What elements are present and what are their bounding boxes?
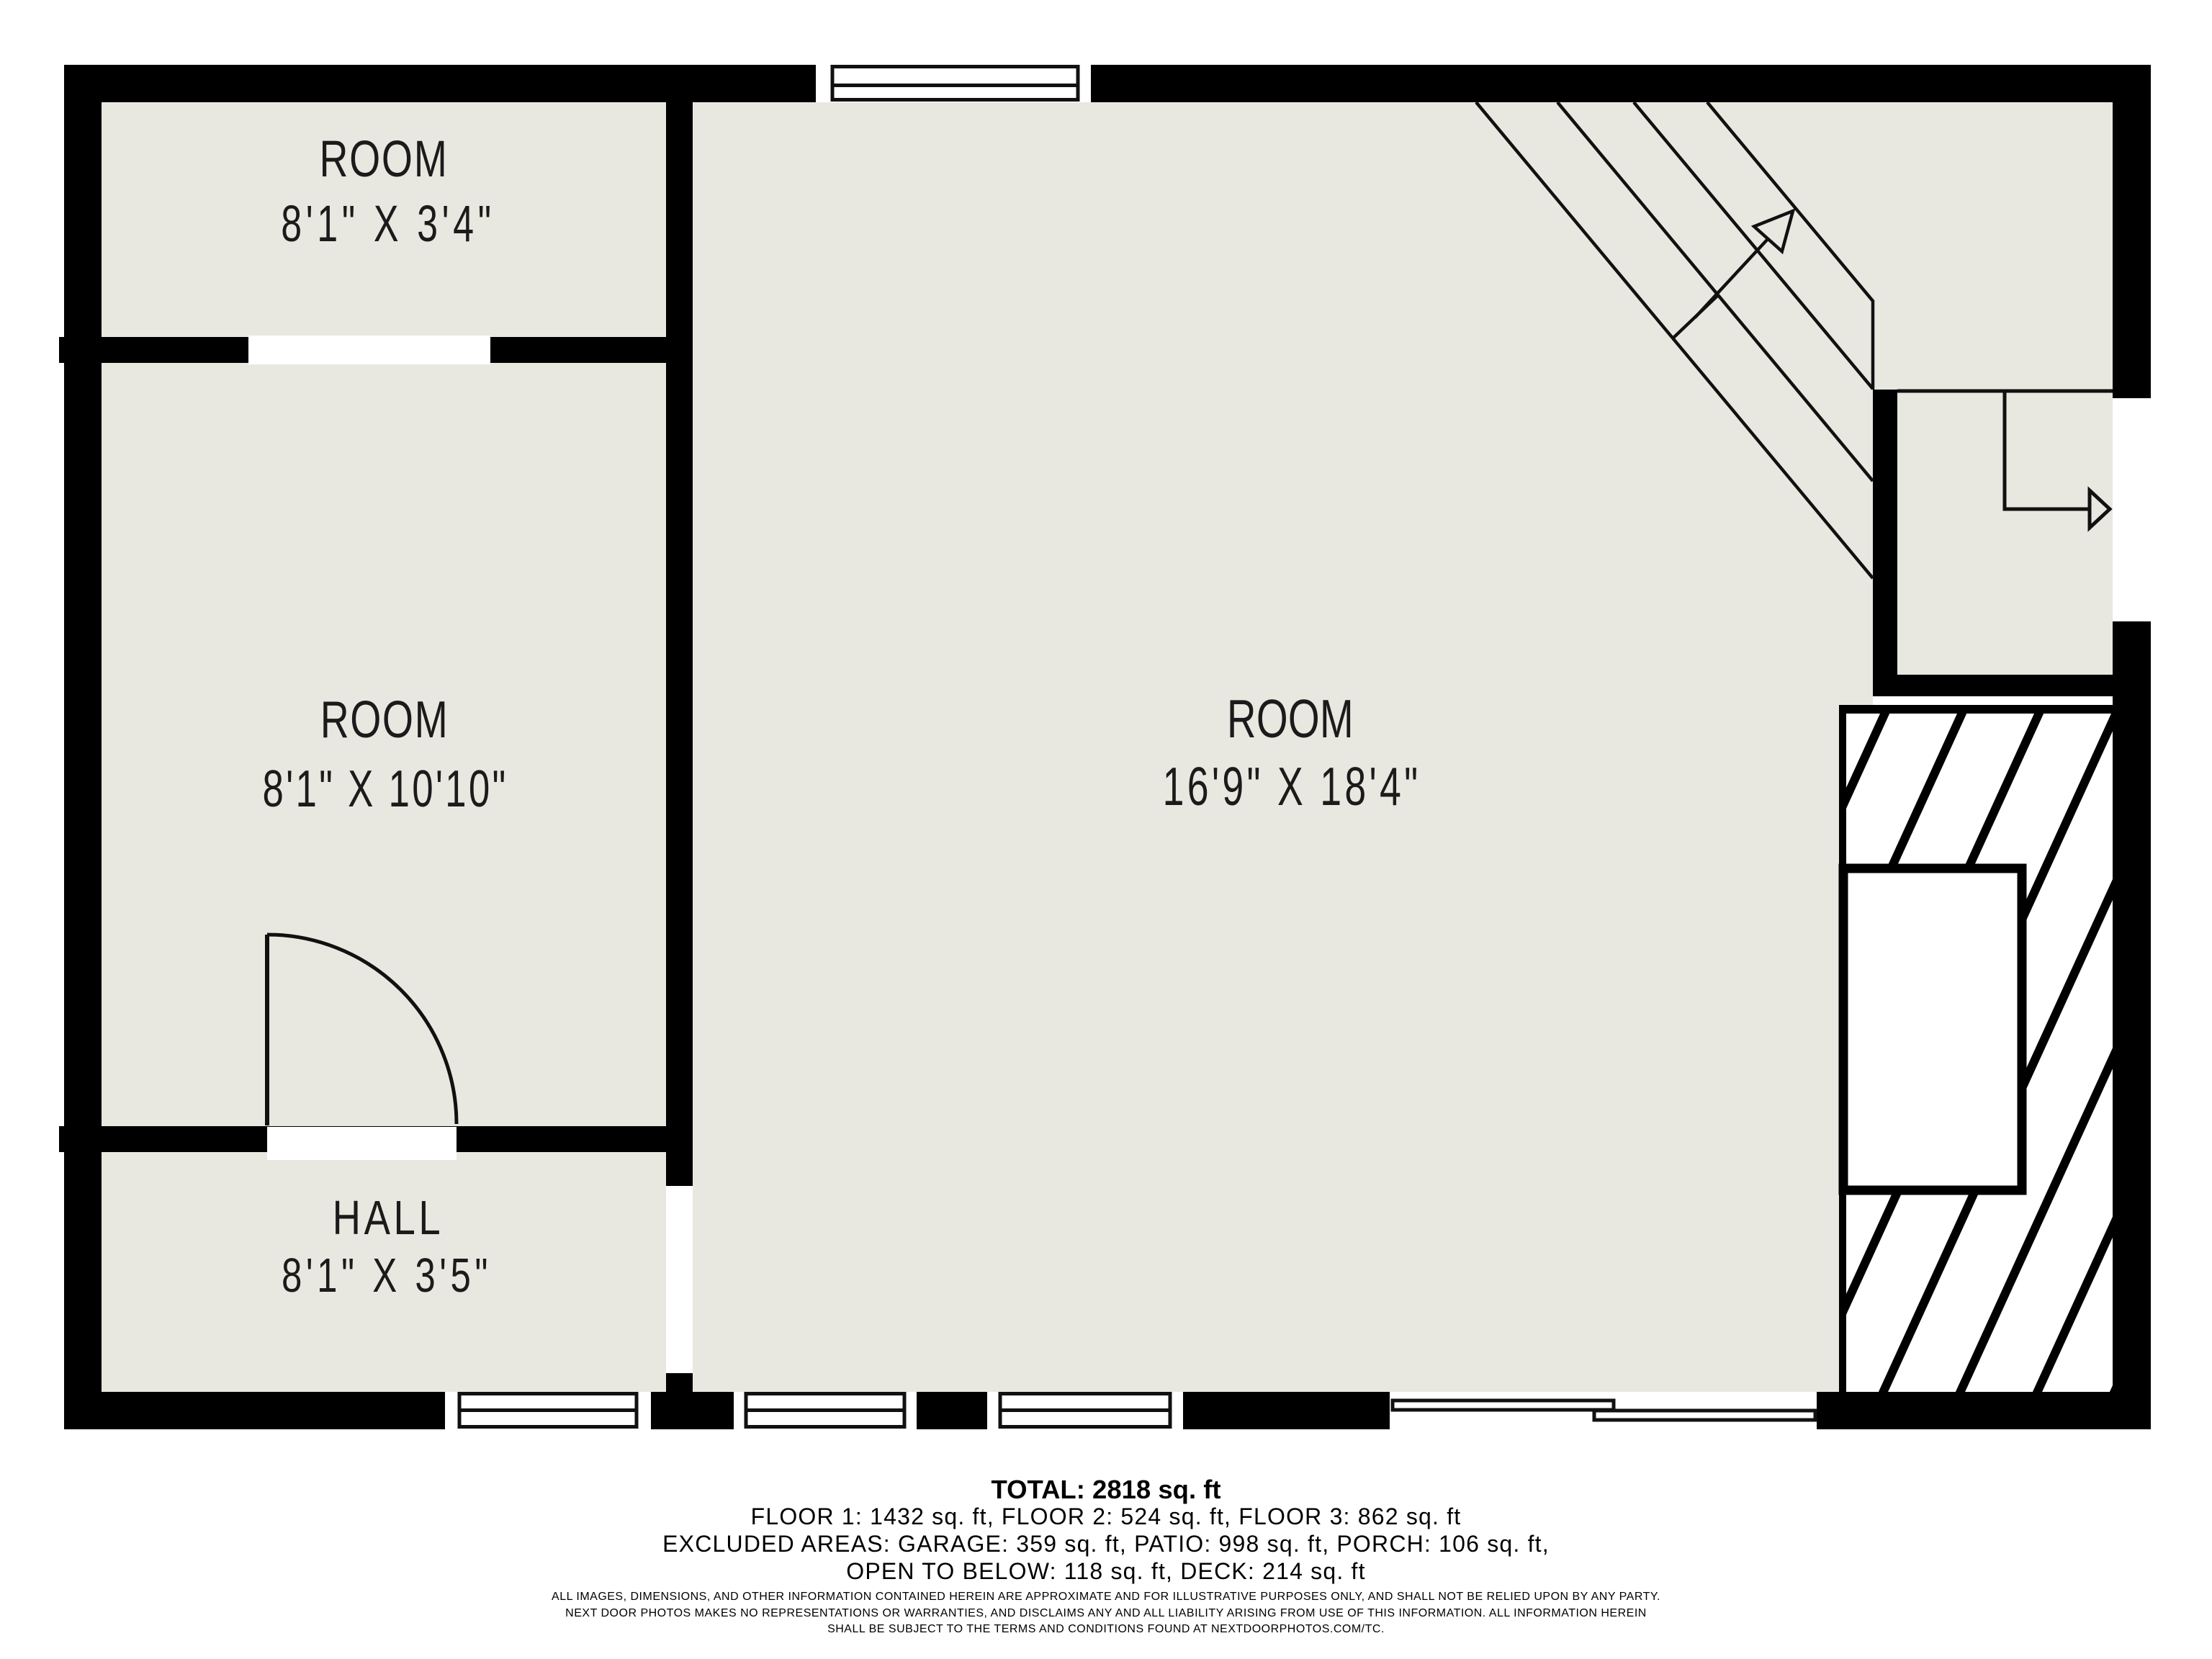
svg-text:16'9" X 18'4": 16'9" X 18'4" <box>1163 756 1421 817</box>
svg-text:OPEN TO BELOW: 118 sq. ft, DEC: OPEN TO BELOW: 118 sq. ft, DECK: 214 sq.… <box>846 1558 1366 1584</box>
svg-text:ROOM: ROOM <box>319 130 448 187</box>
svg-text:NEXT DOOR PHOTOS MAKES NO REPR: NEXT DOOR PHOTOS MAKES NO REPRESENTATION… <box>565 1607 1647 1619</box>
svg-text:TOTAL: 2818 sq. ft: TOTAL: 2818 sq. ft <box>991 1475 1220 1504</box>
svg-text:FLOOR 1: 1432 sq. ft, FLOOR 2:: FLOOR 1: 1432 sq. ft, FLOOR 2: 524 sq. f… <box>751 1503 1462 1529</box>
svg-text:8'1" X 3'5": 8'1" X 3'5" <box>282 1248 492 1302</box>
svg-text:HALL: HALL <box>333 1191 444 1245</box>
svg-text:EXCLUDED AREAS: GARAGE: 359 sq: EXCLUDED AREAS: GARAGE: 359 sq. ft, PATI… <box>662 1531 1550 1557</box>
svg-text:SHALL BE SUBJECT TO THE TERMS: SHALL BE SUBJECT TO THE TERMS AND CONDIT… <box>827 1623 1385 1635</box>
svg-text:ROOM: ROOM <box>1227 689 1354 750</box>
svg-text:8'1" X 3'4": 8'1" X 3'4" <box>281 196 495 253</box>
svg-text:ROOM: ROOM <box>320 691 449 749</box>
svg-text:ALL IMAGES, DIMENSIONS, AND OT: ALL IMAGES, DIMENSIONS, AND OTHER INFORM… <box>552 1591 1660 1603</box>
svg-text:8'1" X 10'10": 8'1" X 10'10" <box>262 760 508 818</box>
